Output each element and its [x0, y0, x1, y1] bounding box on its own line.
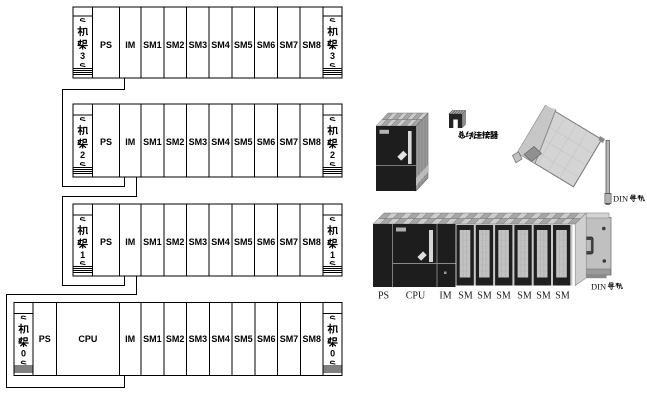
svg-text:PS: PS	[100, 237, 112, 247]
svg-text:SM: SM	[477, 291, 492, 302]
svg-text:3: 3	[80, 51, 85, 61]
svg-text:SM3: SM3	[189, 237, 208, 247]
svg-text:SM2: SM2	[166, 334, 185, 344]
svg-text:SM5: SM5	[234, 334, 253, 344]
svg-text:SM8: SM8	[303, 334, 322, 344]
svg-text:PS: PS	[39, 334, 51, 344]
svg-text:SM4: SM4	[211, 237, 230, 247]
svg-text:SM8: SM8	[302, 237, 321, 247]
svg-text:IM: IM	[125, 137, 135, 147]
svg-text:SM2: SM2	[166, 40, 185, 50]
svg-text:SM: SM	[458, 291, 473, 302]
svg-text:SM7: SM7	[280, 137, 299, 147]
svg-text:SM1: SM1	[143, 40, 162, 50]
svg-text:PS: PS	[100, 40, 112, 50]
svg-text:1: 1	[80, 250, 85, 260]
svg-text:SM: SM	[517, 291, 532, 302]
svg-text:2: 2	[330, 150, 335, 160]
svg-text:IM: IM	[439, 291, 451, 302]
svg-text:SM3: SM3	[189, 334, 208, 344]
svg-text:SM8: SM8	[302, 40, 321, 50]
svg-text:SM2: SM2	[166, 237, 185, 247]
svg-text:1: 1	[330, 250, 335, 260]
svg-text:2: 2	[80, 150, 85, 160]
svg-text:SM3: SM3	[189, 137, 208, 147]
svg-text:SM5: SM5	[234, 237, 253, 247]
svg-text:SM8: SM8	[302, 137, 321, 147]
svg-text:SM7: SM7	[280, 40, 299, 50]
svg-text:SM2: SM2	[166, 137, 185, 147]
svg-text:SM1: SM1	[143, 237, 162, 247]
svg-text:DIN: DIN	[613, 194, 628, 204]
svg-text:CPU: CPU	[78, 334, 97, 344]
svg-text:SM3: SM3	[189, 40, 208, 50]
svg-text:SM: SM	[555, 291, 570, 302]
svg-text:SM4: SM4	[211, 40, 230, 50]
svg-text:SM5: SM5	[234, 40, 253, 50]
svg-text:SM4: SM4	[211, 137, 230, 147]
svg-text:SM1: SM1	[143, 334, 162, 344]
svg-text:0: 0	[330, 349, 335, 359]
svg-text:IM: IM	[125, 334, 135, 344]
svg-text:SM4: SM4	[211, 334, 230, 344]
svg-text:SM6: SM6	[257, 137, 276, 147]
svg-text:SM5: SM5	[234, 137, 253, 147]
svg-text:SM6: SM6	[257, 334, 276, 344]
svg-text:3: 3	[330, 51, 335, 61]
svg-text:0: 0	[21, 349, 26, 359]
svg-text:SM: SM	[536, 291, 551, 302]
svg-text:SM6: SM6	[257, 237, 276, 247]
svg-text:SM7: SM7	[280, 334, 299, 344]
svg-text:PS: PS	[378, 291, 389, 302]
svg-text:SM1: SM1	[143, 137, 162, 147]
svg-text:SM6: SM6	[257, 40, 276, 50]
svg-text:SM7: SM7	[280, 237, 299, 247]
svg-text:DIN: DIN	[591, 282, 606, 292]
svg-text:IM: IM	[125, 237, 135, 247]
svg-text:SM: SM	[496, 291, 511, 302]
svg-text:PS: PS	[100, 137, 112, 147]
svg-text:IM: IM	[125, 40, 135, 50]
svg-text:CPU: CPU	[406, 291, 426, 302]
